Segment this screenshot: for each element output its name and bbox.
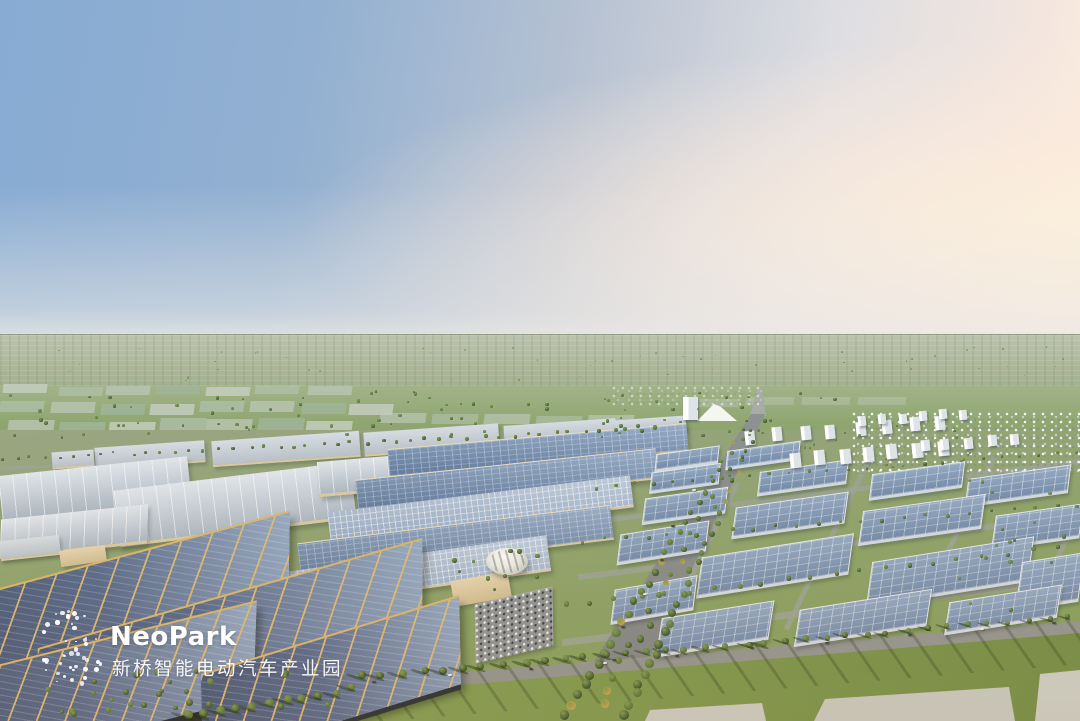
- tree: [422, 436, 426, 440]
- tree: [835, 438, 838, 441]
- tree: [184, 710, 193, 719]
- tree: [187, 376, 189, 378]
- tree: [357, 399, 360, 402]
- tree: [795, 524, 798, 527]
- residential-block: [898, 413, 907, 424]
- tree: [749, 429, 752, 432]
- tree: [541, 657, 549, 665]
- tree: [445, 404, 448, 407]
- tree: [527, 432, 530, 435]
- tree: [1062, 358, 1064, 360]
- tree: [207, 678, 214, 685]
- residential-block: [839, 449, 852, 465]
- tree: [808, 469, 811, 472]
- residential-block: [789, 453, 802, 469]
- tree: [671, 480, 674, 483]
- tree: [216, 396, 220, 400]
- tree: [336, 443, 340, 447]
- tree: [701, 434, 704, 437]
- tree: [590, 365, 591, 366]
- tree: [619, 424, 623, 428]
- tree: [761, 432, 764, 435]
- tree: [640, 429, 644, 433]
- farm-plot: [307, 386, 352, 395]
- tree: [175, 404, 178, 407]
- tree: [564, 601, 569, 606]
- tree: [1027, 618, 1032, 623]
- tree: [654, 640, 663, 649]
- tree: [45, 687, 50, 692]
- tree: [767, 472, 770, 475]
- vehicle: [675, 655, 679, 657]
- tree: [216, 706, 225, 715]
- tree: [113, 404, 117, 408]
- tree: [106, 707, 112, 713]
- tree: [370, 392, 372, 394]
- tree: [144, 451, 147, 454]
- residential-block: [938, 408, 947, 419]
- tree: [668, 609, 676, 617]
- tree: [186, 699, 193, 706]
- tree: [61, 436, 64, 439]
- exhibition-dome: [486, 548, 528, 575]
- farm-plot: [150, 404, 196, 415]
- farm-plot: [379, 413, 426, 423]
- tree: [624, 409, 626, 411]
- tree: [108, 396, 111, 399]
- tree: [679, 421, 681, 423]
- tree: [1075, 451, 1078, 454]
- tree: [645, 659, 654, 668]
- tree: [782, 638, 788, 644]
- tree: [231, 447, 234, 450]
- tree: [371, 424, 375, 428]
- tree: [347, 440, 351, 444]
- tree: [748, 474, 751, 477]
- tree: [173, 706, 177, 710]
- tree: [133, 454, 135, 456]
- tree: [514, 435, 517, 438]
- tree: [211, 411, 214, 414]
- tree: [422, 348, 424, 350]
- tree: [720, 476, 724, 480]
- tree: [154, 669, 160, 675]
- farm-plot: [58, 387, 103, 396]
- vehicle: [643, 593, 647, 595]
- tree: [621, 394, 624, 397]
- tree: [477, 663, 484, 670]
- tree: [691, 479, 694, 482]
- tree: [731, 527, 735, 531]
- tree: [697, 500, 702, 505]
- residential-block: [1009, 434, 1019, 446]
- tree: [723, 499, 728, 504]
- tree: [493, 588, 496, 591]
- tree: [944, 623, 950, 629]
- tree: [730, 478, 734, 482]
- tree: [582, 679, 592, 689]
- tree: [1008, 560, 1012, 564]
- tree: [744, 449, 747, 452]
- residential-block: [959, 409, 968, 420]
- tree: [141, 702, 146, 707]
- tree: [763, 419, 766, 422]
- tree: [611, 360, 613, 362]
- tree: [661, 627, 669, 635]
- tree: [565, 430, 569, 434]
- farm-plot: [302, 403, 348, 414]
- tree: [696, 559, 702, 565]
- tree: [645, 608, 652, 615]
- tree: [663, 580, 669, 586]
- tree: [1006, 553, 1010, 557]
- tree: [825, 635, 831, 641]
- farm-plot: [801, 397, 850, 405]
- tree: [265, 699, 273, 707]
- tree: [965, 621, 971, 627]
- tree: [606, 419, 610, 423]
- tree: [82, 433, 85, 436]
- tree: [625, 642, 632, 649]
- tree: [128, 702, 132, 706]
- tree: [474, 422, 477, 425]
- tree: [934, 355, 936, 357]
- tree: [884, 565, 888, 569]
- residential-block: [862, 446, 875, 462]
- distant-plain: [0, 334, 1080, 391]
- residential-block: [857, 416, 866, 427]
- tree: [395, 440, 399, 444]
- tree: [858, 434, 860, 436]
- farm-plot: [155, 385, 200, 394]
- vehicle: [908, 634, 912, 636]
- tree: [968, 512, 971, 515]
- tree: [842, 632, 848, 638]
- tree: [614, 484, 617, 487]
- tree: [348, 683, 355, 690]
- tree: [702, 644, 709, 651]
- tree: [663, 647, 670, 654]
- farm-plot: [431, 414, 478, 424]
- tree: [656, 592, 662, 598]
- tree: [717, 510, 723, 516]
- tree: [603, 651, 610, 658]
- vehicle: [603, 661, 607, 663]
- residential-block: [824, 424, 835, 439]
- tree: [581, 541, 585, 545]
- tree: [636, 424, 640, 428]
- tree: [221, 351, 223, 353]
- tree: [490, 405, 493, 408]
- tree: [1, 458, 4, 461]
- tree: [257, 351, 259, 353]
- tree: [712, 585, 717, 590]
- tree: [556, 430, 560, 434]
- tree: [325, 702, 330, 707]
- tree: [751, 528, 755, 532]
- tree: [652, 569, 658, 575]
- tree: [535, 554, 539, 558]
- residential-block: [939, 438, 949, 450]
- farm-plot: [105, 386, 150, 395]
- tree: [440, 408, 443, 411]
- tree: [748, 434, 750, 436]
- farm-plot: [483, 414, 530, 424]
- tree: [595, 487, 598, 490]
- farm-plot: [2, 384, 47, 393]
- tree: [925, 625, 930, 630]
- residential-block: [921, 440, 931, 452]
- tree: [630, 597, 637, 604]
- tree: [9, 394, 12, 397]
- tree: [407, 401, 409, 403]
- tree: [376, 672, 384, 680]
- tree: [333, 690, 340, 697]
- tree: [199, 709, 208, 718]
- tree: [923, 462, 926, 465]
- tree: [486, 576, 490, 580]
- tree: [122, 424, 125, 427]
- tree: [60, 710, 64, 714]
- tree: [622, 650, 628, 656]
- vehicle: [529, 667, 533, 669]
- farm-plot: [206, 387, 251, 396]
- neopark-aerial-render: NeoPark 新桥智能电动汽车产业园: [0, 0, 1080, 721]
- tree: [958, 577, 961, 580]
- tree: [910, 368, 912, 370]
- tree: [969, 602, 972, 605]
- tree: [671, 408, 674, 411]
- tree: [725, 396, 728, 399]
- tree: [647, 536, 651, 540]
- tree: [366, 442, 370, 446]
- tree: [375, 390, 377, 392]
- tree: [168, 680, 172, 684]
- tree: [231, 704, 240, 713]
- tree: [377, 419, 380, 422]
- tree: [601, 436, 603, 438]
- tree: [760, 640, 767, 647]
- tree: [620, 417, 622, 419]
- tree: [653, 425, 657, 429]
- tree: [686, 567, 693, 574]
- tree: [803, 635, 810, 642]
- tree: [688, 531, 692, 535]
- tree: [27, 455, 30, 458]
- tree: [681, 547, 686, 552]
- tree: [633, 688, 642, 697]
- tree: [755, 364, 757, 366]
- tree: [278, 703, 284, 709]
- tree: [399, 670, 407, 678]
- tree: [737, 470, 742, 475]
- tree: [560, 710, 570, 720]
- tree: [1056, 545, 1060, 549]
- tree: [612, 629, 620, 637]
- residential-block: [814, 450, 827, 466]
- tree: [500, 661, 507, 668]
- tree: [625, 611, 632, 618]
- tree: [719, 460, 723, 464]
- tree: [70, 370, 71, 371]
- tree: [174, 451, 177, 454]
- tree: [460, 417, 463, 420]
- tree: [1005, 621, 1010, 626]
- tree: [1056, 504, 1059, 507]
- tree: [1009, 608, 1013, 612]
- residential-block: [772, 427, 783, 442]
- residential-block: [885, 444, 898, 460]
- tree: [535, 575, 539, 579]
- tree: [39, 418, 42, 421]
- tree: [1007, 366, 1008, 367]
- tree: [484, 434, 488, 438]
- tree: [390, 423, 392, 425]
- farm-plot: [254, 385, 299, 394]
- tree: [201, 449, 204, 452]
- tree: [703, 490, 708, 495]
- tree: [866, 467, 869, 470]
- tree: [95, 416, 98, 419]
- tree: [1075, 505, 1079, 509]
- residential-block: [800, 425, 811, 440]
- tree: [712, 369, 713, 370]
- tree: [847, 469, 850, 472]
- tree: [640, 355, 641, 356]
- tree: [262, 444, 265, 447]
- tree: [865, 632, 871, 638]
- tree: [299, 403, 302, 406]
- tree: [680, 647, 686, 653]
- tree: [483, 430, 486, 433]
- farm-plot: [857, 397, 906, 405]
- tree: [758, 582, 763, 587]
- residential-block: [919, 411, 928, 422]
- tree: [566, 701, 575, 710]
- tree: [966, 349, 968, 351]
- tree: [730, 451, 734, 455]
- tree: [946, 514, 950, 518]
- tree: [963, 458, 965, 460]
- tree: [652, 482, 655, 485]
- tree: [984, 621, 989, 626]
- tree: [717, 468, 721, 472]
- residential-block: [683, 397, 698, 420]
- tree: [88, 396, 91, 399]
- tree: [1062, 534, 1066, 538]
- tree: [741, 455, 744, 458]
- tree: [741, 438, 744, 441]
- tree: [606, 640, 614, 648]
- farm-plot: [199, 401, 245, 412]
- farm-plot: [100, 404, 146, 415]
- tree: [549, 370, 550, 371]
- tree: [882, 631, 888, 637]
- tree: [602, 422, 605, 425]
- tree: [38, 409, 42, 413]
- tree: [931, 562, 935, 566]
- tree: [518, 379, 520, 381]
- tree: [694, 533, 699, 538]
- tree: [579, 653, 586, 660]
- tree: [700, 358, 702, 360]
- tree: [297, 695, 305, 703]
- tree: [711, 479, 715, 483]
- tree: [508, 549, 512, 553]
- tree: [710, 494, 715, 499]
- tree: [699, 550, 705, 556]
- tree: [641, 671, 650, 680]
- tree: [851, 370, 853, 372]
- tree: [537, 359, 538, 360]
- tree: [452, 558, 457, 563]
- tree: [252, 425, 255, 428]
- tree: [545, 403, 548, 406]
- tree: [981, 480, 984, 483]
- tree: [17, 457, 20, 460]
- vehicle: [372, 680, 376, 682]
- residential-block: [964, 437, 974, 449]
- tree: [292, 446, 295, 449]
- tree: [214, 361, 215, 362]
- tree: [87, 454, 90, 457]
- tree: [880, 519, 883, 522]
- tree: [345, 433, 348, 436]
- sky: [0, 0, 1080, 338]
- tree: [624, 535, 628, 539]
- residential-block: [878, 414, 887, 425]
- tree: [687, 591, 692, 596]
- farm-plot: [50, 402, 96, 413]
- tree: [512, 347, 514, 349]
- tree: [1065, 614, 1070, 619]
- farm-plot: [249, 401, 295, 412]
- tree: [13, 434, 16, 437]
- tree: [601, 699, 609, 707]
- tree: [728, 430, 730, 432]
- tree: [618, 432, 620, 434]
- tree: [1031, 547, 1035, 551]
- tree: [439, 667, 447, 675]
- tree: [314, 692, 322, 700]
- tree: [643, 648, 650, 655]
- tree: [286, 357, 287, 358]
- tree: [722, 643, 729, 650]
- tree: [833, 398, 837, 402]
- tree: [982, 457, 985, 460]
- tree: [647, 622, 654, 629]
- tree: [820, 397, 822, 399]
- residential-block: [987, 434, 997, 446]
- tree: [247, 703, 256, 712]
- tree: [284, 695, 292, 703]
- tree: [787, 576, 791, 580]
- tree: [751, 440, 754, 443]
- tree: [450, 417, 453, 420]
- tree: [187, 449, 190, 452]
- tree: [678, 529, 684, 535]
- tree: [1048, 616, 1053, 621]
- tree: [517, 549, 522, 554]
- tree: [1002, 348, 1004, 350]
